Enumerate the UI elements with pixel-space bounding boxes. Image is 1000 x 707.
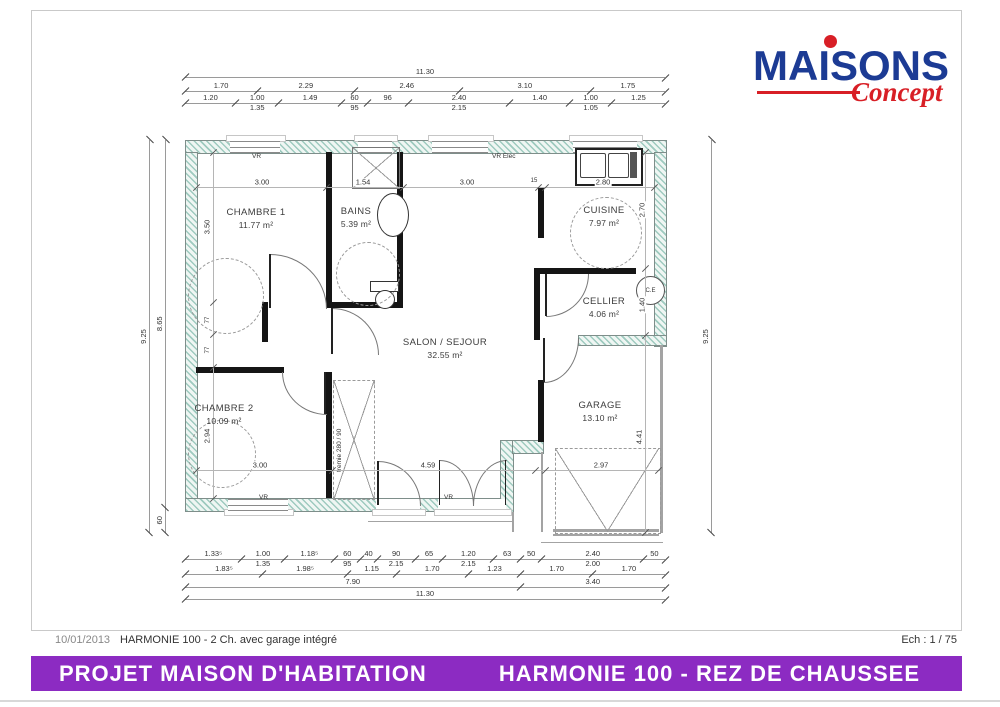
- dim-segment: 11.30: [185, 64, 665, 78]
- dim-segment: 63: [494, 546, 521, 560]
- dim-line: [196, 470, 660, 471]
- dim-value: 1.40: [532, 94, 547, 102]
- wall-sejour-garage: [538, 380, 544, 442]
- footer-right-title: HARMONIE 100 - REZ DE CHAUSSEE: [499, 661, 920, 687]
- garage-slab-line: [541, 542, 663, 543]
- room-name: BAINS: [326, 206, 386, 217]
- room-area: 11.77 m²: [206, 220, 306, 230]
- logo-i-dot-icon: [824, 35, 837, 48]
- dim-chain-bottom-overall: 11.30: [185, 586, 665, 600]
- wall-cellier-garage: [578, 335, 667, 346]
- room-name: CHAMBRE 1: [206, 207, 306, 218]
- dim-value: 9.25: [140, 329, 148, 344]
- dim-label: 2.94: [203, 428, 211, 445]
- room-area: 7.97 m²: [564, 218, 644, 228]
- room-area: 4.06 m²: [564, 309, 644, 319]
- porch-slab-line: [368, 521, 512, 522]
- room-name: SALON / SEJOUR: [393, 337, 497, 348]
- dim-segment: 1.49: [278, 90, 341, 104]
- room-area: 10.09 m²: [174, 416, 274, 426]
- date-label: 10/01/2013: [55, 634, 110, 646]
- dim-value: 1.20: [203, 94, 218, 102]
- dim-label: 15: [530, 178, 539, 184]
- dim-value: 1.70: [622, 565, 637, 573]
- dim-segment: 1.83⁵: [185, 561, 263, 575]
- dim-value: 11.30: [416, 68, 434, 76]
- window-chambre1: [230, 141, 280, 153]
- room-label-chambre1: CHAMBRE 1 11.77 m²: [206, 207, 306, 230]
- dim-value: 60: [343, 550, 351, 558]
- dim-value: 1.75: [621, 82, 636, 90]
- dim-value: 1.25: [631, 94, 646, 102]
- room-label-bains: BAINS 5.39 m²: [326, 206, 386, 229]
- dim-value: 50: [650, 550, 658, 558]
- scale-label: Ech : 1 / 75: [800, 634, 957, 646]
- dim-value-secondary: 1.05: [583, 104, 598, 112]
- dim-value: 9.25: [702, 329, 710, 344]
- dim-value: 1.00: [250, 94, 265, 102]
- room-area: 13.10 m²: [550, 413, 650, 423]
- dim-segment: 902.15: [377, 546, 415, 560]
- window-salon-bay: [432, 141, 488, 153]
- dim-segment: 1.20: [185, 90, 236, 104]
- dim-segment: 1.25: [612, 90, 665, 104]
- dim-value: 1.15: [364, 565, 379, 573]
- dim-chain-top-detail: 1.201.001.351.496095962.402.151.401.001.…: [185, 90, 665, 104]
- wall-sejour-jog-h: [512, 440, 544, 454]
- dim-label: 3.00: [254, 178, 271, 186]
- dim-value: 1.18⁵: [301, 550, 319, 558]
- dim-chain-bottom-detail: 1.33⁵1.001.351.18⁵609540902.15651.202.15…: [185, 546, 665, 560]
- dim-value: 2.40: [585, 550, 600, 558]
- room-label-chambre2: CHAMBRE 2 10.09 m²: [174, 403, 274, 426]
- dim-segment: 2.402.00: [542, 546, 644, 560]
- room-label-garage: GARAGE 13.10 m²: [550, 400, 650, 423]
- dim-value: 3.40: [585, 578, 600, 586]
- dim-segment: 1.70: [521, 561, 593, 575]
- dim-value: 1.33⁵: [204, 550, 222, 558]
- sink-basin-icon: [580, 153, 606, 178]
- dim-segment: 60: [152, 508, 166, 533]
- dim-value: 90: [392, 550, 400, 558]
- dim-value: 1.70: [549, 565, 564, 573]
- footer-bar: PROJET MAISON D'HABITATION HARMONIE 100 …: [31, 656, 962, 691]
- dim-value: 60: [350, 94, 358, 102]
- dim-value: 2.29: [299, 82, 314, 90]
- room-area: 32.55 m²: [393, 350, 497, 360]
- dim-segment: 11.30: [185, 586, 665, 600]
- dim-segment: 96: [367, 90, 408, 104]
- dim-segment: 1.001.35: [242, 546, 284, 560]
- dim-value: 1.70: [425, 565, 440, 573]
- dim-segment: 1.98⁵: [263, 561, 347, 575]
- dim-value: 1.83⁵: [215, 565, 233, 573]
- dim-segment: 6095: [335, 546, 360, 560]
- dim-value: 60: [156, 516, 164, 524]
- dim-value-secondary: 1.35: [250, 104, 265, 112]
- dim-value: 1.00: [583, 94, 598, 102]
- dim-value-secondary: 2.15: [452, 104, 467, 112]
- dim-segment: 1.001.05: [569, 90, 611, 104]
- dim-label: 4.41: [635, 429, 643, 446]
- dim-value: 40: [364, 550, 372, 558]
- dim-chain-bottom-major: 1.83⁵1.98⁵1.151.701.231.701.70: [185, 561, 665, 575]
- wall-garage-left: [541, 452, 543, 532]
- room-area: 5.39 m²: [326, 219, 386, 229]
- dim-value: 7.90: [345, 578, 360, 586]
- dim-value: 11.30: [416, 590, 434, 598]
- room-label-salon: SALON / SEJOUR 32.55 m²: [393, 337, 497, 360]
- dim-segment: 50: [644, 546, 665, 560]
- door-leaf: [269, 254, 271, 308]
- wall-hall-stub: [262, 302, 268, 342]
- dim-segment: 9.25: [136, 140, 150, 533]
- dim-value: 1.49: [303, 94, 318, 102]
- dim-segment: 8.65: [152, 140, 166, 508]
- dim-value: 65: [425, 550, 433, 558]
- dim-label: 2.97: [593, 461, 610, 469]
- room-name: GARAGE: [550, 400, 650, 411]
- dim-chain-left-overall: 9.25: [136, 140, 150, 533]
- wall-cellier-left: [534, 268, 540, 340]
- sink-drainer-icon: [630, 152, 637, 178]
- door-leaf: [545, 274, 547, 316]
- dim-chain-left-inner: 608.65: [152, 140, 166, 533]
- dim-value: 63: [503, 550, 511, 558]
- sink-basin-icon: [608, 153, 629, 178]
- dim-segment: 1.70: [593, 561, 665, 575]
- dim-segment: 65: [415, 546, 443, 560]
- dim-segment: 1.23: [468, 561, 520, 575]
- dim-label: 3.00: [459, 178, 476, 186]
- vr-elec-label: VR Elec: [492, 153, 515, 160]
- vr-label: VR: [259, 494, 268, 501]
- furniture-circle: [188, 258, 264, 334]
- window-chambre2: [228, 499, 288, 511]
- dim-label: 4.59: [420, 461, 437, 469]
- dim-segment: 1.202.15: [443, 546, 494, 560]
- dim-label: 1.54: [355, 178, 372, 186]
- dim-segment: 1.33⁵: [185, 546, 242, 560]
- tremie-label: tremie 280 / 90: [336, 429, 343, 472]
- dim-value: 96: [383, 94, 391, 102]
- wall-cuisine-left: [538, 188, 544, 238]
- vr-label: VR: [444, 494, 453, 501]
- window-sill: [434, 509, 512, 516]
- dim-segment: 2.402.15: [408, 90, 510, 104]
- furniture-circle: [336, 242, 400, 306]
- footer-left-title: PROJET MAISON D'HABITATION: [59, 661, 427, 687]
- dim-value: 50: [527, 550, 535, 558]
- dim-value: 1.70: [214, 82, 229, 90]
- logo-script-text: Concept: [851, 77, 943, 108]
- dim-segment: 9.25: [698, 140, 712, 533]
- dim-segment: 1.15: [347, 561, 396, 575]
- dim-value: 1.98⁵: [296, 565, 314, 573]
- dim-value: 3.10: [518, 82, 533, 90]
- wall-exterior-right: [654, 152, 667, 347]
- room-label-cuisine: CUISINE 7.97 m²: [564, 205, 644, 228]
- dim-label: 3.00: [252, 461, 269, 469]
- slab-step: [512, 512, 514, 532]
- dim-segment: 50: [521, 546, 542, 560]
- dim-segment: 1.001.35: [236, 90, 278, 104]
- dim-value-secondary: 95: [350, 104, 358, 112]
- dim-label: 77: [205, 346, 211, 355]
- dim-value: 2.40: [452, 94, 467, 102]
- dim-chain-top-overall: 11.30: [185, 64, 665, 78]
- room-name: CHAMBRE 2: [174, 403, 274, 414]
- drawing-sheet: MAISONS Concept 11.30 1.702.292.463.101.…: [0, 0, 1000, 707]
- dim-segment: 6095: [342, 90, 367, 104]
- door-leaf: [439, 460, 440, 505]
- room-name: CELLIER: [564, 296, 644, 307]
- dim-value: 2.46: [399, 82, 414, 90]
- dim-segment: 1.70: [396, 561, 468, 575]
- dim-value: 1.00: [256, 550, 271, 558]
- furniture-circle: [188, 420, 256, 488]
- door-leaf: [377, 461, 379, 505]
- dim-line: [196, 187, 654, 188]
- vr-label: VR: [252, 153, 261, 160]
- logo-underline: [757, 91, 860, 94]
- dim-value: 1.23: [487, 565, 502, 573]
- door-leaf: [543, 338, 545, 382]
- dim-label: 77: [205, 316, 211, 325]
- model-label: HARMONIE 100 - 2 Ch. avec garage intégré: [120, 634, 337, 646]
- window-sill: [372, 509, 426, 516]
- dim-value: 1.20: [461, 550, 476, 558]
- dim-segment: 1.18⁵: [284, 546, 334, 560]
- door-leaf: [324, 372, 326, 414]
- garage-door-swing-line: [607, 448, 659, 532]
- dim-label: 2.80: [595, 178, 612, 186]
- sheet-bottom-edge: [0, 700, 1000, 702]
- room-name: CUISINE: [564, 205, 644, 216]
- dim-segment: 1.40: [510, 90, 569, 104]
- dim-segment: 40: [360, 546, 377, 560]
- dim-line: [213, 152, 214, 498]
- dim-value: 8.65: [156, 316, 164, 331]
- room-label-cellier: CELLIER 4.06 m²: [564, 296, 644, 319]
- door-leaf: [331, 308, 333, 354]
- dim-chain-right-overall: 9.25: [698, 140, 712, 533]
- door-leaf: [505, 460, 506, 505]
